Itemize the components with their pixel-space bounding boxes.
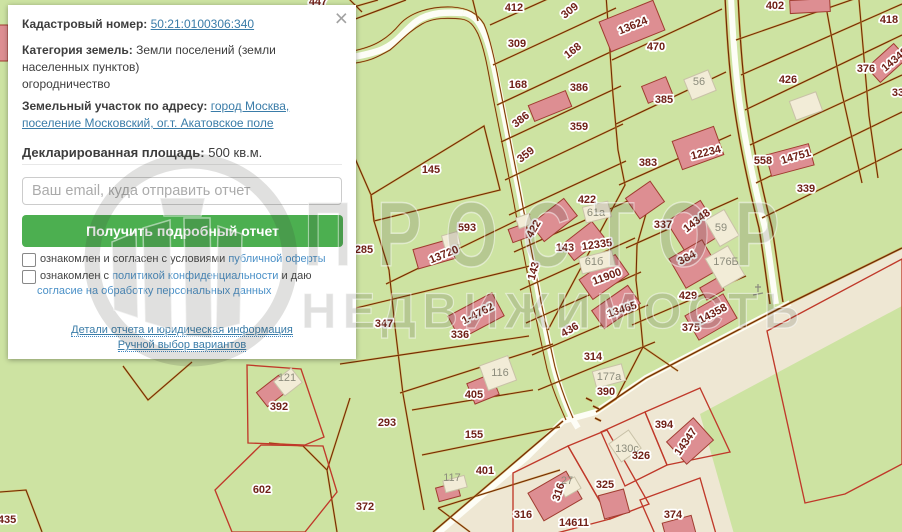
svg-text:386: 386 (570, 82, 588, 94)
svg-text:59: 59 (715, 222, 727, 234)
svg-text:470: 470 (647, 41, 665, 53)
svg-text:61б: 61б (585, 256, 604, 268)
svg-text:130с: 130с (615, 443, 639, 455)
svg-text:422: 422 (578, 194, 596, 206)
svg-text:14611: 14611 (559, 517, 589, 529)
svg-text:309: 309 (508, 38, 526, 50)
svg-text:121: 121 (278, 372, 296, 384)
svg-text:435: 435 (0, 514, 16, 526)
svg-text:285: 285 (355, 244, 373, 256)
svg-text:293: 293 (378, 417, 396, 429)
svg-text:176Б: 176Б (713, 256, 739, 268)
svg-text:336: 336 (451, 329, 469, 341)
svg-text:145: 145 (422, 164, 440, 176)
svg-text:376: 376 (857, 63, 875, 75)
svg-text:426: 426 (779, 74, 797, 86)
svg-text:405: 405 (465, 389, 483, 401)
svg-text:339: 339 (797, 183, 815, 195)
svg-text:374: 374 (664, 509, 683, 521)
svg-text:27: 27 (561, 475, 573, 487)
svg-text:314: 314 (584, 351, 603, 363)
svg-text:56: 56 (693, 76, 705, 88)
svg-text:155: 155 (465, 429, 483, 441)
svg-text:390: 390 (597, 386, 615, 398)
svg-text:429: 429 (679, 290, 697, 302)
svg-text:337: 337 (654, 219, 672, 231)
svg-text:316: 316 (514, 509, 532, 521)
svg-text:402: 402 (766, 0, 784, 12)
svg-text:394: 394 (655, 419, 674, 431)
svg-text:602: 602 (253, 484, 271, 496)
svg-text:593: 593 (458, 222, 476, 234)
svg-text:325: 325 (596, 479, 614, 491)
svg-text:558: 558 (754, 155, 772, 167)
svg-text:383: 383 (639, 157, 657, 169)
svg-text:375: 375 (682, 322, 700, 334)
svg-text:61а: 61а (587, 207, 606, 219)
svg-text:168: 168 (509, 79, 527, 91)
svg-text:116: 116 (491, 367, 509, 379)
svg-text:372: 372 (356, 501, 374, 513)
svg-text:33: 33 (892, 87, 902, 99)
svg-text:418: 418 (880, 14, 898, 26)
svg-text:401: 401 (476, 465, 494, 477)
svg-text:177а: 177а (597, 371, 622, 383)
svg-text:385: 385 (655, 94, 673, 106)
svg-text:359: 359 (570, 121, 588, 133)
svg-text:117: 117 (443, 472, 461, 484)
svg-text:392: 392 (270, 401, 288, 413)
svg-text:143: 143 (556, 242, 574, 254)
svg-text:412: 412 (505, 2, 523, 14)
svg-text:347: 347 (375, 318, 393, 330)
